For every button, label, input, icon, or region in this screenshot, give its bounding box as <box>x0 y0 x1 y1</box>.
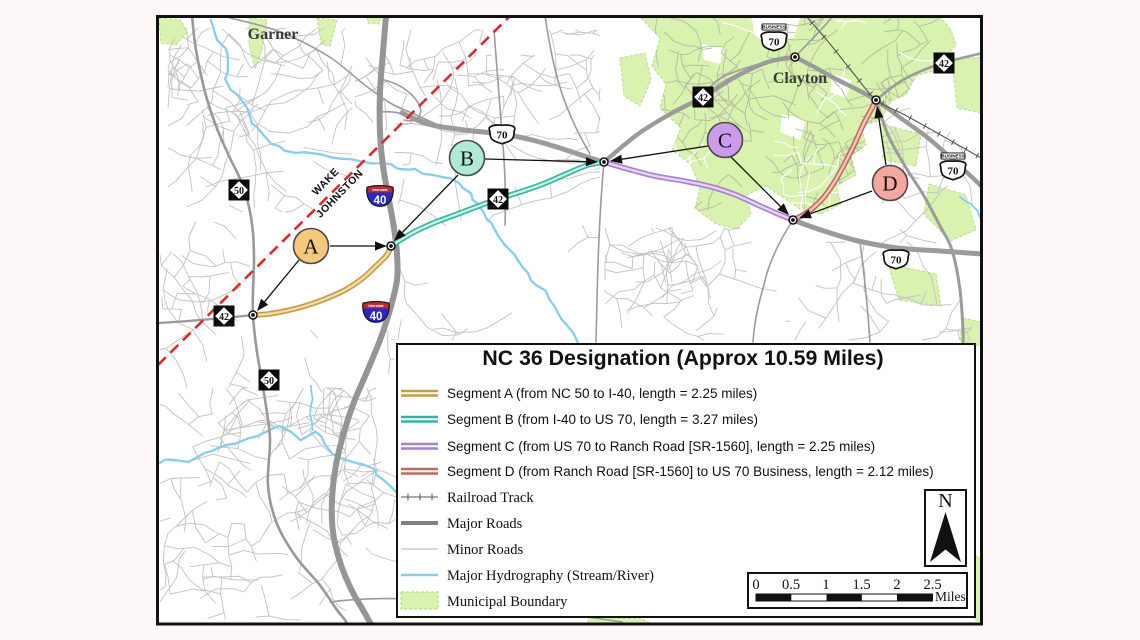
svg-text:BUSINESS: BUSINESS <box>762 25 786 30</box>
svg-text:Railroad Track: Railroad Track <box>447 490 534 506</box>
svg-text:0: 0 <box>752 577 759 593</box>
svg-text:Municipal Boundary: Municipal Boundary <box>447 594 568 610</box>
svg-text:42: 42 <box>698 93 708 104</box>
svg-text:1.5: 1.5 <box>852 577 870 593</box>
svg-text:Segment B (from I-40 to US 70,: Segment B (from I-40 to US 70, length = … <box>447 412 758 427</box>
svg-text:Minor Roads: Minor Roads <box>447 542 523 558</box>
svg-text:Miles: Miles <box>935 589 966 604</box>
svg-text:42: 42 <box>493 195 503 206</box>
svg-text:Segment A (from NC 50 to I-40,: Segment A (from NC 50 to I-40, length = … <box>447 386 757 401</box>
svg-text:Interstate: Interstate <box>372 188 387 192</box>
svg-text:C: C <box>718 129 732 153</box>
svg-text:70: 70 <box>891 254 903 266</box>
svg-text:42: 42 <box>219 312 229 323</box>
svg-text:Interstate: Interstate <box>368 304 383 308</box>
svg-text:Major Hydrography (Stream/Rive: Major Hydrography (Stream/River) <box>447 568 654 584</box>
svg-text:NC 36 Designation (Approx 10.5: NC 36 Designation (Approx 10.59 Miles) <box>482 346 883 370</box>
svg-text:Clayton: Clayton <box>773 70 827 87</box>
svg-text:Major Roads: Major Roads <box>447 516 523 532</box>
svg-text:B: B <box>460 147 474 171</box>
svg-text:1: 1 <box>822 577 829 593</box>
svg-text:0.5: 0.5 <box>782 577 800 593</box>
svg-text:40: 40 <box>370 311 383 323</box>
svg-text:Segment D (from Ranch Road [SR: Segment D (from Ranch Road [SR-1560] to … <box>447 464 934 479</box>
svg-text:50: 50 <box>234 186 244 197</box>
svg-text:Segment C (from US 70 to Ranc: Segment C (from US 70 to Ranch Road [SR-… <box>447 439 875 454</box>
svg-text:A: A <box>303 235 319 259</box>
svg-text:D: D <box>882 172 897 196</box>
svg-text:40: 40 <box>374 195 387 207</box>
svg-text:42: 42 <box>939 59 949 70</box>
svg-text:50: 50 <box>264 376 274 387</box>
svg-text:70: 70 <box>948 165 960 177</box>
svg-text:70: 70 <box>497 129 509 141</box>
svg-text:BUSINESS: BUSINESS <box>941 154 965 159</box>
svg-text:2: 2 <box>893 577 900 593</box>
svg-text:Garner: Garner <box>248 26 299 43</box>
svg-text:N: N <box>938 490 952 512</box>
svg-text:70: 70 <box>769 36 781 48</box>
